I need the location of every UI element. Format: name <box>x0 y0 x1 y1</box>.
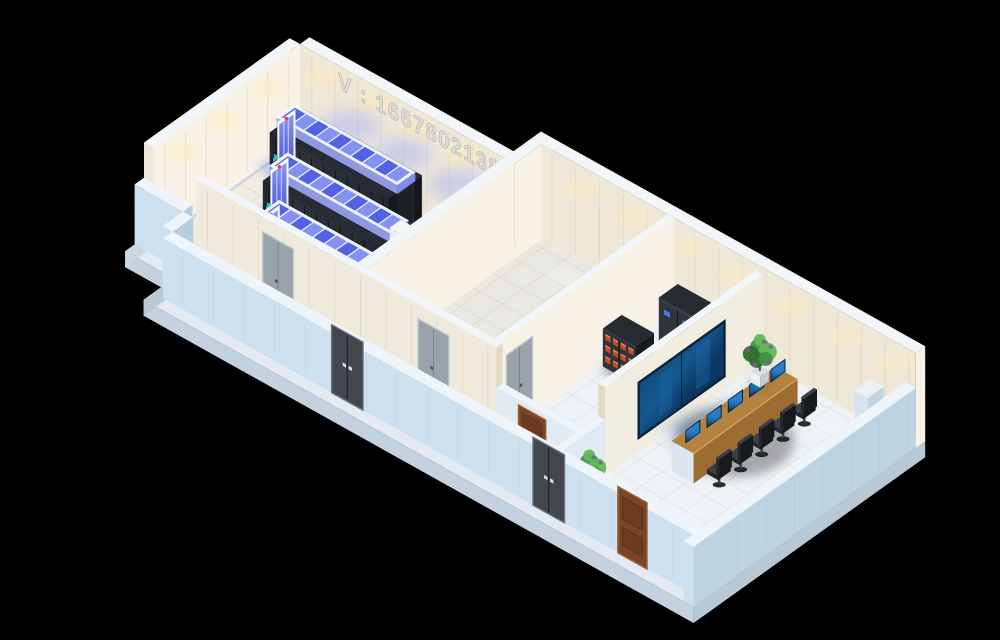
pod-status-light <box>285 117 289 121</box>
datacenter-isometric-render: V : 16678021386 <box>0 0 1000 640</box>
pod-status-light <box>278 165 282 169</box>
datacenter-render-stage: V : 16678021386 <box>0 0 1000 640</box>
